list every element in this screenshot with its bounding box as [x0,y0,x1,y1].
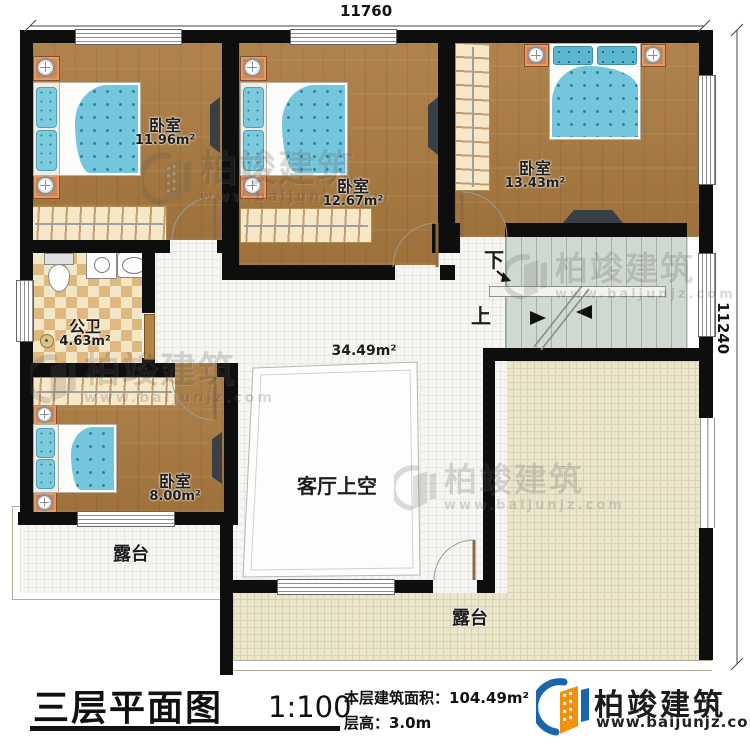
wall [432,223,460,253]
terrace-bottom-parapet [233,660,712,671]
stairs-down-label: 下 [484,250,504,270]
room-name: 卧室 [323,178,383,195]
wall [483,361,495,593]
plan-scale: 1:100 [268,690,352,724]
room-name: 客厅上空 [297,478,377,495]
room-name: 卧室 [505,160,565,177]
hall-area-label: 34.49m² [331,344,396,358]
floor-drain-icon [40,334,54,348]
room-label-bathroom: 公卫 4.63m² [59,318,110,349]
window [290,29,397,45]
bed [59,82,141,176]
washing-machine-drum [94,257,110,273]
window [75,29,182,45]
wall [233,580,277,593]
dimension-top: 11760 [340,2,392,20]
terrace-left-label: 露台 [113,546,149,563]
wall [438,43,455,225]
terrace-railing [700,418,715,528]
window [277,579,395,595]
wardrobe [31,206,167,241]
wall [477,580,495,593]
brand-logo-icon [536,676,594,738]
room-name: 公卫 [59,318,110,335]
floor-plan: 卧室 11.96m² 卧室 12.67m² 卧室 13.43m² 卧室 8.00… [0,0,750,743]
room-area: 13.43m² [505,177,565,191]
room-label-bedroom1: 卧室 11.96m² [135,117,195,148]
lamp-icon [36,58,55,77]
lamp-icon [36,406,53,423]
wall [699,43,713,75]
bed-cushion [36,428,55,458]
pillow [553,46,593,65]
title-underline [30,726,340,731]
room-area: 34.49m² [331,344,396,358]
lamp-icon [527,46,545,64]
lamp-icon [243,58,262,77]
wall [483,348,713,361]
wardrobe [33,377,176,406]
terrace-right-label: 露台 [452,610,488,627]
wall [224,377,238,525]
bed-quilt [71,427,114,490]
tv [212,432,222,484]
room-name: 露台 [113,546,149,563]
wardrobe [455,43,490,191]
wall [220,525,233,675]
stair-handrail [489,286,666,297]
wardrobe [240,208,372,243]
floor-area-text: 本层建筑面积：104.49m² [344,687,529,708]
wall [222,265,395,280]
room-area: 8.00m² [149,490,200,504]
pillow [597,46,637,65]
lamp-icon [644,46,662,64]
room-label-bedroom3: 卧室 13.43m² [505,160,565,191]
bed-cushion [36,130,57,171]
dimension-right: 11240 [714,302,732,354]
bed-quilt [75,85,138,173]
bed [58,424,117,493]
window [77,511,175,527]
lamp-icon [243,176,262,195]
wall [20,240,170,253]
room-area: 12.67m² [323,195,383,209]
lamp-icon [36,176,55,195]
wall [699,528,713,660]
wall [173,512,230,525]
wall [393,580,433,593]
living-void-label: 客厅上空 [297,478,377,495]
floor-height-text: 层高：3.0m [344,712,431,733]
window [698,75,716,185]
bathroom-door [144,314,155,360]
room-label-bedroom2: 卧室 12.67m² [323,178,383,209]
wall [142,253,155,313]
room-name: 露台 [452,610,488,627]
window [16,280,34,342]
brand-url: www.baijunjz.com [596,713,750,731]
room-label-bedroom4: 卧室 8.00m² [149,473,200,504]
bed [266,82,348,176]
wall [18,512,77,525]
room-area: 11.96m² [135,134,195,148]
bed-cushion [243,87,264,128]
bed-cushion [243,130,264,171]
lamp-icon [36,494,53,511]
room-name: 卧室 [149,473,200,490]
bed-cushion [36,87,57,128]
wall [20,363,175,377]
stairs-up-label: 上 [471,306,491,326]
bed-quilt [552,66,638,137]
tv [428,97,438,155]
wall [505,223,687,237]
bed-cushion [36,459,55,489]
washing-machine-icon [86,252,117,279]
wall [222,43,239,280]
bed-quilt [282,85,345,173]
room-name: 卧室 [135,117,195,134]
wall [440,265,455,280]
wall [217,363,238,377]
wall [699,183,713,253]
room-area: 4.63m² [59,335,110,349]
tv [210,97,220,153]
plan-title: 三层平面图 [33,679,223,731]
